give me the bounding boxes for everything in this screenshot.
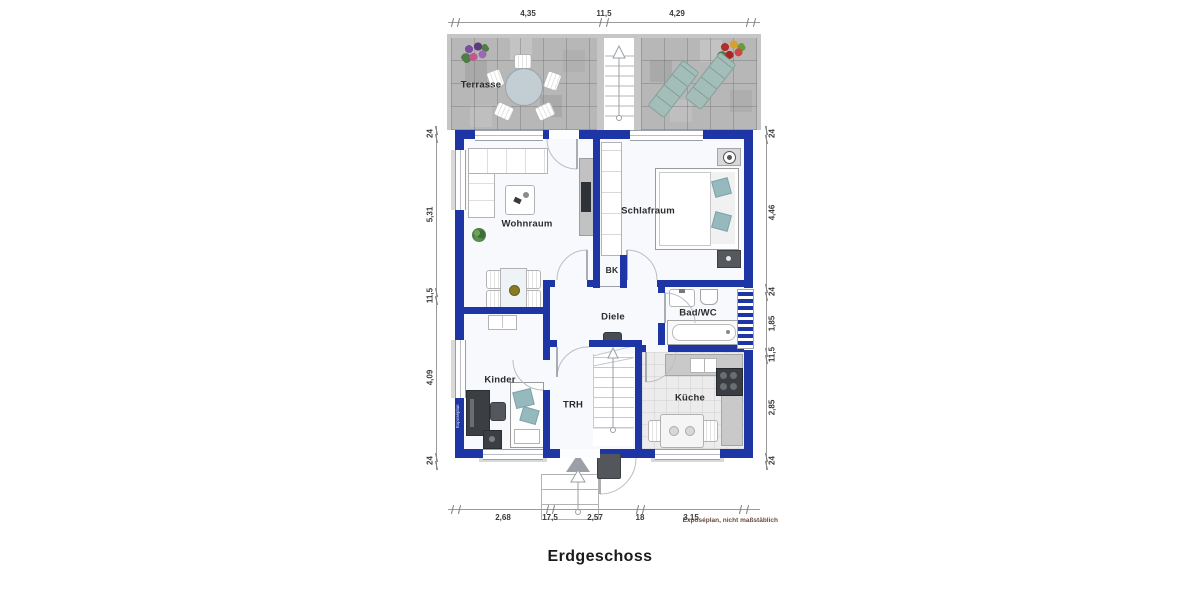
floorplan-page: Terrasse — [0, 0, 1200, 600]
watermark: Exposéplan — [455, 388, 464, 444]
tv — [581, 182, 591, 212]
wardrobe — [601, 142, 622, 256]
sink-bowl — [690, 358, 705, 373]
stairs — [593, 354, 634, 428]
window-wohnraum-left — [455, 150, 466, 210]
coffee-table — [505, 185, 535, 215]
cabinet-divider — [502, 316, 503, 328]
wall-schlaf-diele — [620, 280, 627, 287]
entrance-door-opening — [560, 449, 600, 458]
room-label-kinder: Kinder — [484, 375, 515, 386]
terrace-wall-right — [757, 34, 761, 130]
terrace-chair — [514, 54, 532, 69]
wall-kinder-right — [543, 287, 550, 360]
wall-trh-top — [589, 340, 635, 347]
sofa-top-arm — [468, 148, 548, 174]
terrace-door-opening — [549, 130, 579, 139]
plate — [685, 426, 695, 436]
drain — [726, 330, 730, 334]
doormat — [597, 453, 621, 479]
dim-label: 24 — [426, 441, 435, 481]
single-bed — [510, 382, 544, 448]
room-label-trh: TRH — [563, 400, 583, 411]
room-label-diele: Diele — [601, 312, 625, 323]
stove — [716, 368, 743, 396]
dim-label: 4,35 — [508, 9, 548, 18]
plant — [472, 228, 486, 242]
wall-kueche-top — [668, 345, 744, 352]
garden-stairs — [604, 38, 634, 130]
remote — [513, 197, 521, 204]
dim-line-bottom — [448, 509, 760, 510]
nightstand — [717, 148, 741, 166]
bk-door-line — [600, 286, 620, 287]
lamp — [723, 151, 736, 164]
wall-trh-top — [550, 340, 557, 347]
wall-bad-left — [658, 287, 665, 293]
garden-stair-wall-left — [597, 38, 604, 130]
sink — [669, 289, 695, 307]
bk-wall-left — [593, 255, 600, 288]
flower-bed-left — [460, 40, 490, 66]
wall-trh-kueche — [635, 340, 642, 449]
dim-label: 4,09 — [426, 358, 435, 398]
burner — [720, 383, 727, 390]
bowl — [523, 192, 529, 198]
monitor — [470, 399, 474, 427]
fruit-bowl — [509, 285, 520, 296]
dim-label: 11,5 — [584, 9, 624, 18]
window-schlafraum-top — [630, 130, 703, 141]
room-label-bk: BK — [606, 265, 619, 275]
room-label-wohnraum: Wohnraum — [501, 219, 552, 230]
wall-top — [579, 130, 630, 139]
dim-label: 24 — [768, 441, 777, 481]
burner — [720, 372, 727, 379]
dim-label: 11,5 — [426, 276, 435, 316]
toy-box — [483, 430, 502, 449]
radiator — [737, 289, 754, 349]
kitchen-table — [660, 414, 704, 448]
page-title: Erdgeschoss — [0, 548, 1200, 566]
dim-label: 11,5 — [768, 335, 777, 375]
nightstand — [717, 250, 741, 268]
wall-wohn-diele — [587, 280, 593, 287]
wall-kinder-right — [543, 390, 550, 449]
bathtub — [667, 320, 744, 345]
wall-right — [744, 130, 753, 288]
burner — [730, 372, 737, 379]
room-label-terrasse: Terrasse — [461, 80, 502, 91]
room-label-badwc: Bad/WC — [679, 308, 717, 319]
faucet — [679, 289, 685, 293]
terrace-table — [505, 68, 543, 106]
dim-label: 2,68 — [483, 513, 523, 522]
window-kinder-bottom — [483, 449, 543, 460]
dim-label: 24 — [426, 114, 435, 154]
toy — [489, 436, 495, 442]
terrace-wall-left — [447, 34, 451, 130]
room-label-schlafraum: Schlafraum — [621, 206, 675, 217]
dim-line-top — [448, 22, 760, 23]
wall-schlaf-bad — [657, 280, 744, 287]
wall-wohn-kinder — [455, 307, 543, 314]
wall-left — [455, 130, 464, 150]
room-label-kueche: Küche — [675, 393, 705, 404]
kitchen-chair — [702, 420, 718, 442]
garden-stair-wall-right — [634, 38, 641, 130]
wall-bottom — [543, 449, 560, 458]
terrace-wall-top — [447, 34, 761, 38]
wall-kueche-top — [642, 345, 646, 352]
footnote: Exposéplan, nicht maßstäblich — [560, 517, 778, 524]
dim-label: 5,31 — [426, 195, 435, 235]
stair-landing — [593, 428, 633, 446]
dim-label: 4,46 — [768, 193, 777, 233]
dim-label: 24 — [768, 114, 777, 154]
lamp — [726, 256, 731, 261]
dim-label: 2,85 — [768, 388, 777, 428]
dining-table — [500, 268, 527, 312]
wall-wohn-diele — [543, 280, 555, 287]
pillow — [514, 429, 540, 444]
window-wohnraum-top — [475, 130, 543, 141]
wall-wohn-schlaf — [593, 139, 600, 255]
window-kueche-bottom — [655, 449, 720, 460]
wall-bad-left — [658, 323, 665, 345]
wall-right — [744, 350, 753, 458]
blanket — [519, 406, 539, 425]
wall-left — [455, 210, 464, 340]
desk-chair — [490, 402, 506, 421]
kinder-cabinet — [488, 315, 517, 330]
toilet — [700, 289, 718, 305]
burner — [730, 383, 737, 390]
dim-label: 4,29 — [657, 9, 697, 18]
plate — [669, 426, 679, 436]
